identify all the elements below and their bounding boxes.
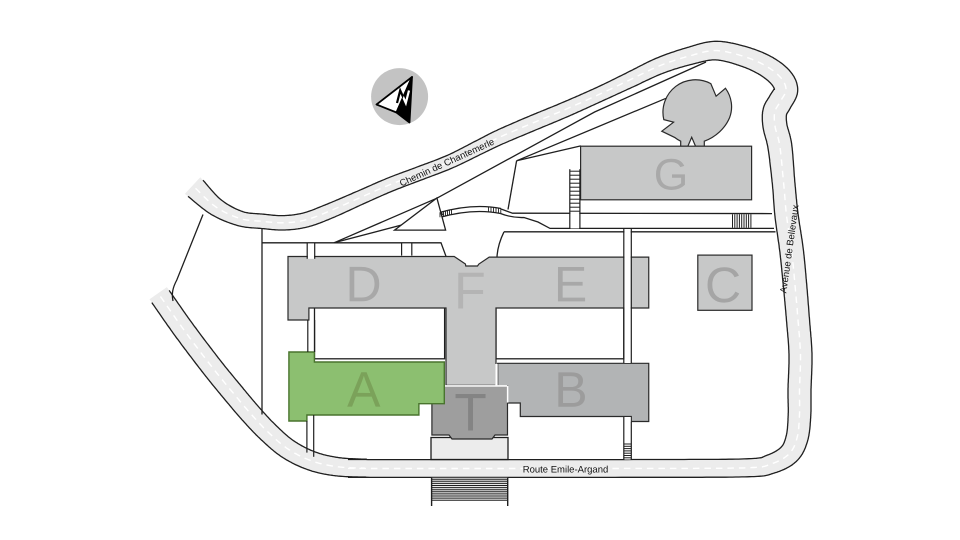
svg-text:A: A bbox=[347, 362, 381, 418]
svg-text:Route Emile-Argand: Route Emile-Argand bbox=[523, 464, 609, 475]
svg-text:E: E bbox=[554, 256, 587, 312]
svg-text:B: B bbox=[554, 362, 587, 418]
svg-text:D: D bbox=[346, 256, 382, 312]
svg-text:T: T bbox=[454, 383, 486, 442]
svg-text:C: C bbox=[705, 257, 741, 313]
svg-text:G: G bbox=[654, 151, 689, 200]
svg-text:F: F bbox=[454, 262, 486, 320]
